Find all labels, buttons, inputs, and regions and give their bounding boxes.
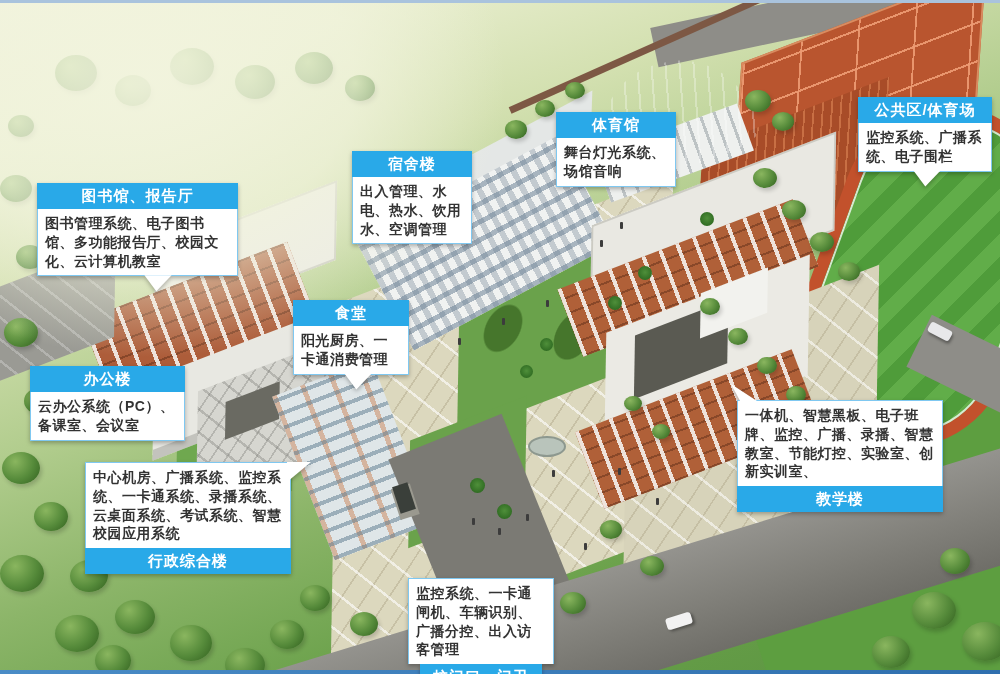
tree	[600, 520, 622, 539]
tree	[810, 232, 834, 252]
callout-gymnasium-body: 舞台灯光系统、场馆音响	[556, 138, 676, 187]
pedestrian	[584, 543, 587, 550]
tree	[350, 612, 378, 636]
tree	[753, 168, 777, 188]
tree	[560, 592, 586, 614]
callout-canteen: 食堂 阳光厨房、一卡通消费管理	[293, 300, 409, 375]
tree	[872, 636, 910, 668]
tree	[565, 82, 585, 99]
callout-library-hall-title: 图书馆、报告厅	[37, 183, 238, 209]
callout-canteen-body: 阳光厨房、一卡通消费管理	[293, 326, 409, 375]
tree	[2, 452, 40, 484]
callout-gymnasium: 体育馆 舞台灯光系统、场馆音响	[556, 112, 676, 187]
pedestrian	[498, 528, 501, 535]
tree	[300, 585, 330, 611]
tree	[270, 620, 304, 649]
callout-teaching-building-body: 一体机、智慧黑板、电子班牌、监控、广播、录播、智慧教室、节能灯控、实验室、创新实…	[737, 400, 943, 486]
tree	[772, 112, 794, 131]
palm-tree	[470, 478, 485, 493]
pedestrian	[526, 514, 529, 521]
callout-teaching-building: 一体机、智慧黑板、电子班牌、监控、广播、录播、智慧教室、节能灯控、实验室、创新实…	[737, 400, 943, 512]
tree	[700, 298, 720, 315]
callout-public-area-title: 公共区/体育场	[858, 97, 992, 123]
callout-teaching-building-title: 教学楼	[737, 486, 943, 512]
callout-admin-complex-title: 行政综合楼	[85, 548, 291, 574]
campus-map: 图书馆、报告厅 图书管理系统、电子图书馆、多功能报告厅、校园文化、云计算机教室 …	[0, 0, 1000, 674]
callout-school-gate-title: 校门口、门卫	[420, 664, 542, 674]
tree	[640, 556, 664, 576]
tree	[55, 615, 99, 652]
callout-dormitory-body: 出入管理、水电、热水、饮用水、空调管理	[352, 177, 472, 244]
palm-tree	[700, 212, 714, 226]
callout-dormitory: 宿舍楼 出入管理、水电、热水、饮用水、空调管理	[352, 151, 472, 244]
pedestrian	[600, 240, 603, 247]
tree	[170, 625, 212, 661]
tree	[34, 502, 68, 531]
tree	[0, 555, 44, 592]
callout-library-hall: 图书馆、报告厅 图书管理系统、电子图书馆、多功能报告厅、校园文化、云计算机教室	[37, 183, 238, 276]
pedestrian	[552, 470, 555, 477]
callout-dormitory-title: 宿舍楼	[352, 151, 472, 177]
callout-office-building-body: 云办公系统（PC）、备课室、会议室	[30, 392, 185, 441]
pedestrian	[656, 498, 659, 505]
palm-tree	[540, 338, 553, 351]
tree	[652, 424, 670, 439]
callout-school-gate: 监控系统、一卡通闸机、车辆识别、广播分控、出入访客管理 校门口、门卫	[408, 578, 554, 674]
callout-admin-complex-body: 中心机房、广播系统、监控系统、一卡通系统、录播系统、云桌面系统、考试系统、智慧校…	[85, 462, 291, 548]
tree	[838, 262, 860, 281]
palm-tree	[497, 504, 512, 519]
callout-gymnasium-title: 体育馆	[556, 112, 676, 138]
tree	[745, 90, 771, 112]
tree	[962, 622, 1000, 661]
tree	[912, 592, 956, 629]
palm-tree	[608, 296, 622, 310]
pedestrian	[618, 468, 621, 475]
callout-library-hall-body: 图书管理系统、电子图书馆、多功能报告厅、校园文化、云计算机教室	[37, 209, 238, 276]
edge-top	[0, 0, 1000, 3]
pedestrian	[546, 300, 549, 307]
fountain	[528, 436, 566, 457]
admin-roof-vent	[225, 382, 280, 440]
tree	[624, 396, 642, 411]
callout-school-gate-body: 监控系统、一卡通闸机、车辆识别、广播分控、出入访客管理	[408, 578, 554, 664]
tree	[940, 548, 970, 574]
callout-office-building: 办公楼 云办公系统（PC）、备课室、会议室	[30, 366, 185, 441]
callout-public-area: 公共区/体育场 监控系统、广播系统、电子围栏	[858, 97, 992, 172]
palm-tree	[520, 365, 533, 378]
tree	[728, 328, 748, 345]
tree	[115, 600, 155, 634]
pedestrian	[472, 518, 475, 525]
callout-public-area-body: 监控系统、广播系统、电子围栏	[858, 123, 992, 172]
callout-admin-complex: 中心机房、广播系统、监控系统、一卡通系统、录播系统、云桌面系统、考试系统、智慧校…	[85, 462, 291, 574]
pedestrian	[620, 222, 623, 229]
tree	[757, 357, 777, 374]
tree	[535, 100, 555, 117]
tree	[782, 200, 806, 220]
callout-canteen-title: 食堂	[293, 300, 409, 326]
callout-office-building-title: 办公楼	[30, 366, 185, 392]
palm-tree	[638, 266, 652, 280]
